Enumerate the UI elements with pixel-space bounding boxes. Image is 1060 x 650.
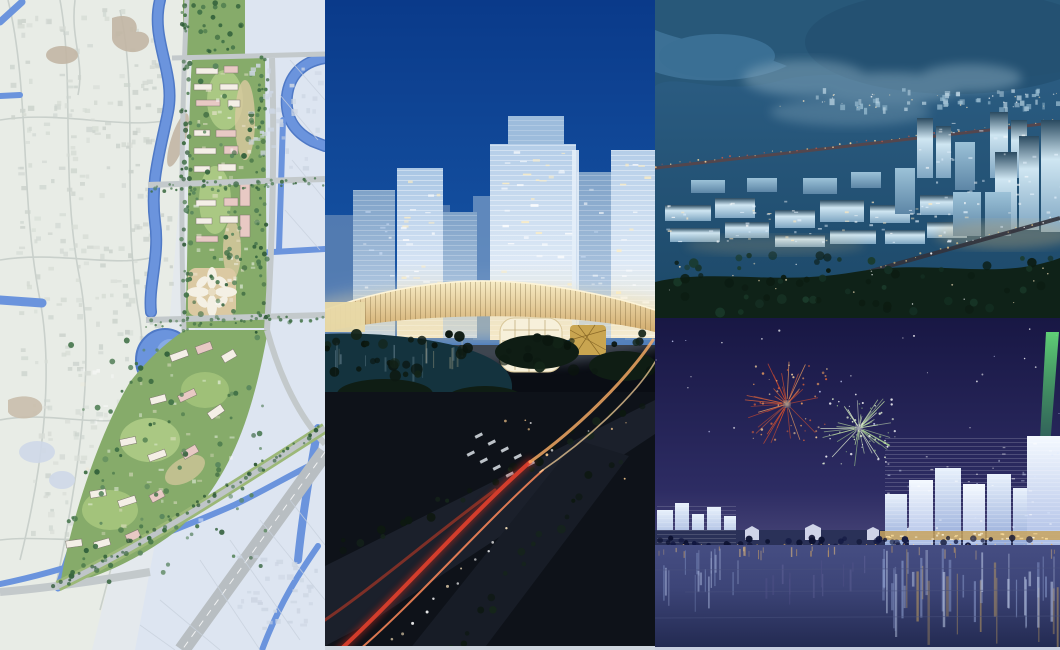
panel-cbd-night [325,0,655,650]
cbd-night-drawing [325,0,655,650]
panel-aerial-night [655,0,1060,318]
collage-root [0,0,1060,650]
waterfront-drawing [655,318,1060,650]
masterplan-map-drawing [0,0,325,650]
panel-masterplan-map [0,0,325,650]
cbd-bottom-strip [325,646,655,650]
panel-waterfront-fireworks [655,318,1060,650]
aerial-night-drawing [655,0,1060,318]
